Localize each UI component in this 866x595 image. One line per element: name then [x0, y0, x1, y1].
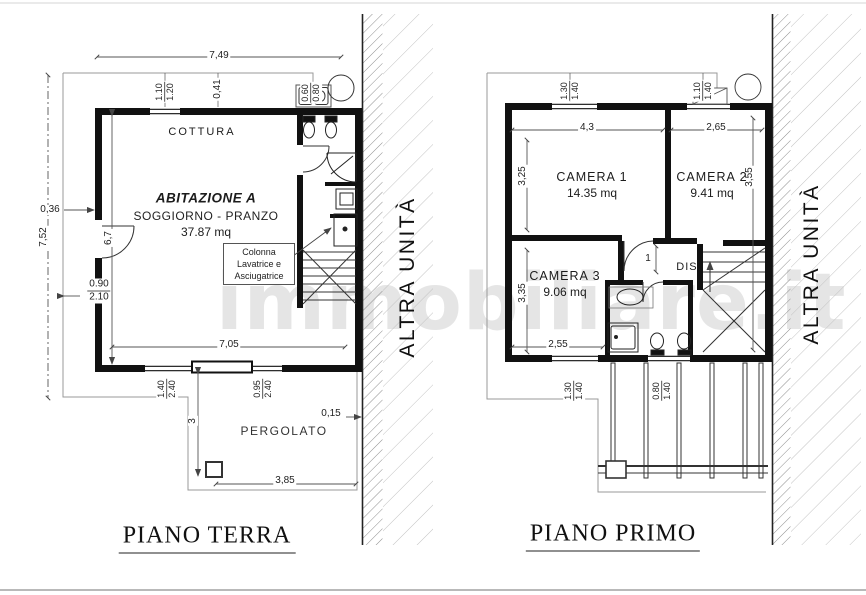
adjacent-unit-label-first: ALTRA UNITÀ: [800, 183, 824, 344]
camera3-area: 9.06 mq: [543, 285, 586, 299]
ground-wall-pier: [192, 362, 252, 373]
laundry-note-line2: Lavatrice e: [225, 258, 293, 270]
camera2-name: CAMERA 2: [676, 170, 747, 184]
dim-wall-gap: 0,15: [319, 409, 342, 419]
dim-camera3-width: 2,55: [546, 340, 569, 350]
first-windows: [552, 104, 730, 360]
shower-icon: [327, 153, 356, 182]
dim-left-offset: 0,36: [38, 205, 61, 215]
dim-bottom-width: 7,05: [217, 340, 240, 350]
laundry-note-line1: Colonna: [225, 246, 293, 258]
dim-ff-window1-bottom: 1.30 1.40: [563, 380, 585, 402]
bidet-icon: [325, 116, 337, 138]
hall-label: DIS.: [676, 261, 701, 273]
adjacent-unit-label-ground: ALTRA UNITÀ: [396, 196, 420, 357]
floorplan-linework: [0, 0, 866, 595]
first-floor-title: PIANO PRIMO: [526, 521, 700, 552]
camera1-name: CAMERA 1: [556, 170, 627, 184]
laundry-note-line3: Asciugatrice: [225, 270, 293, 282]
balcony-post-icon: [606, 461, 626, 478]
dim-camera1-depth: 3,25: [518, 164, 528, 187]
dim-inner-height: 6,7: [104, 229, 114, 247]
ground-floor-title: PIANO TERRA: [119, 523, 296, 554]
dim-window-bottom-right: 0.95 2.40: [252, 378, 274, 400]
dim-bath-window: 0.60 0.80: [300, 82, 322, 104]
laundry-leader-line: [289, 228, 331, 259]
ground-stairs-icon: [303, 250, 356, 304]
first-bathroom-fixtures: [608, 287, 691, 355]
living-room-area: 37.87 mq: [181, 225, 231, 239]
dim-camera2-width: 2,65: [704, 123, 727, 133]
dim-wall-offset: 0,41: [213, 77, 223, 100]
dim-camera1-width: 4,3: [578, 123, 596, 133]
first-doors: [624, 241, 663, 302]
ground-windows: [145, 109, 282, 370]
living-room-label: SOGGIORNO - PRANZO: [133, 209, 278, 223]
dim-ff-window2-bottom: 0.80 1.40: [651, 380, 673, 402]
ground-bathroom-fixtures: [303, 116, 357, 246]
dim-ff-window1-top: 1.30 1.40: [559, 80, 581, 102]
pergola-post-icon: [206, 462, 222, 477]
tank-icon: [328, 75, 354, 101]
dim-pergola-width: 3,85: [273, 476, 296, 486]
dim-pergola-depth: 3: [188, 416, 198, 426]
laundry-note-box: Colonna Lavatrice e Asciugatrice: [223, 243, 295, 285]
ground-walls: [95, 108, 362, 372]
shower-icon: [608, 323, 638, 352]
first-balcony-pergola: [598, 363, 768, 478]
dim-ff-window2-top: 1.10 1.40: [692, 80, 714, 102]
camera1-area: 14.35 mq: [567, 186, 617, 200]
dim-total-height: 7,52: [39, 225, 49, 248]
dim-door-width: 1: [643, 254, 653, 264]
first-dimension-lines: [512, 73, 762, 352]
unit-name: ABITAZIONE A: [156, 191, 257, 206]
camera2-area: 9.41 mq: [690, 186, 733, 200]
dim-left-door: 0.90 2.10: [87, 279, 110, 304]
first-stairs-icon: [703, 248, 765, 352]
dim-camera3-depth: 3,35: [518, 281, 528, 304]
dim-top-width: 7,49: [207, 51, 230, 61]
kitchen-label: COTTURA: [168, 126, 235, 138]
camera3-name: CAMERA 3: [529, 269, 600, 283]
toilet-icon: [651, 333, 665, 355]
toilet-icon: [303, 116, 315, 138]
pergola-label: PERGOLATO: [240, 424, 327, 438]
tank-icon: [735, 74, 761, 100]
dim-window-top: 1.10 1.20: [154, 81, 176, 103]
sink-icon: [617, 289, 643, 305]
floorplan-image: immobiliare.it: [0, 0, 866, 595]
dim-window-bottom-left: 1.40 2.40: [156, 378, 178, 400]
